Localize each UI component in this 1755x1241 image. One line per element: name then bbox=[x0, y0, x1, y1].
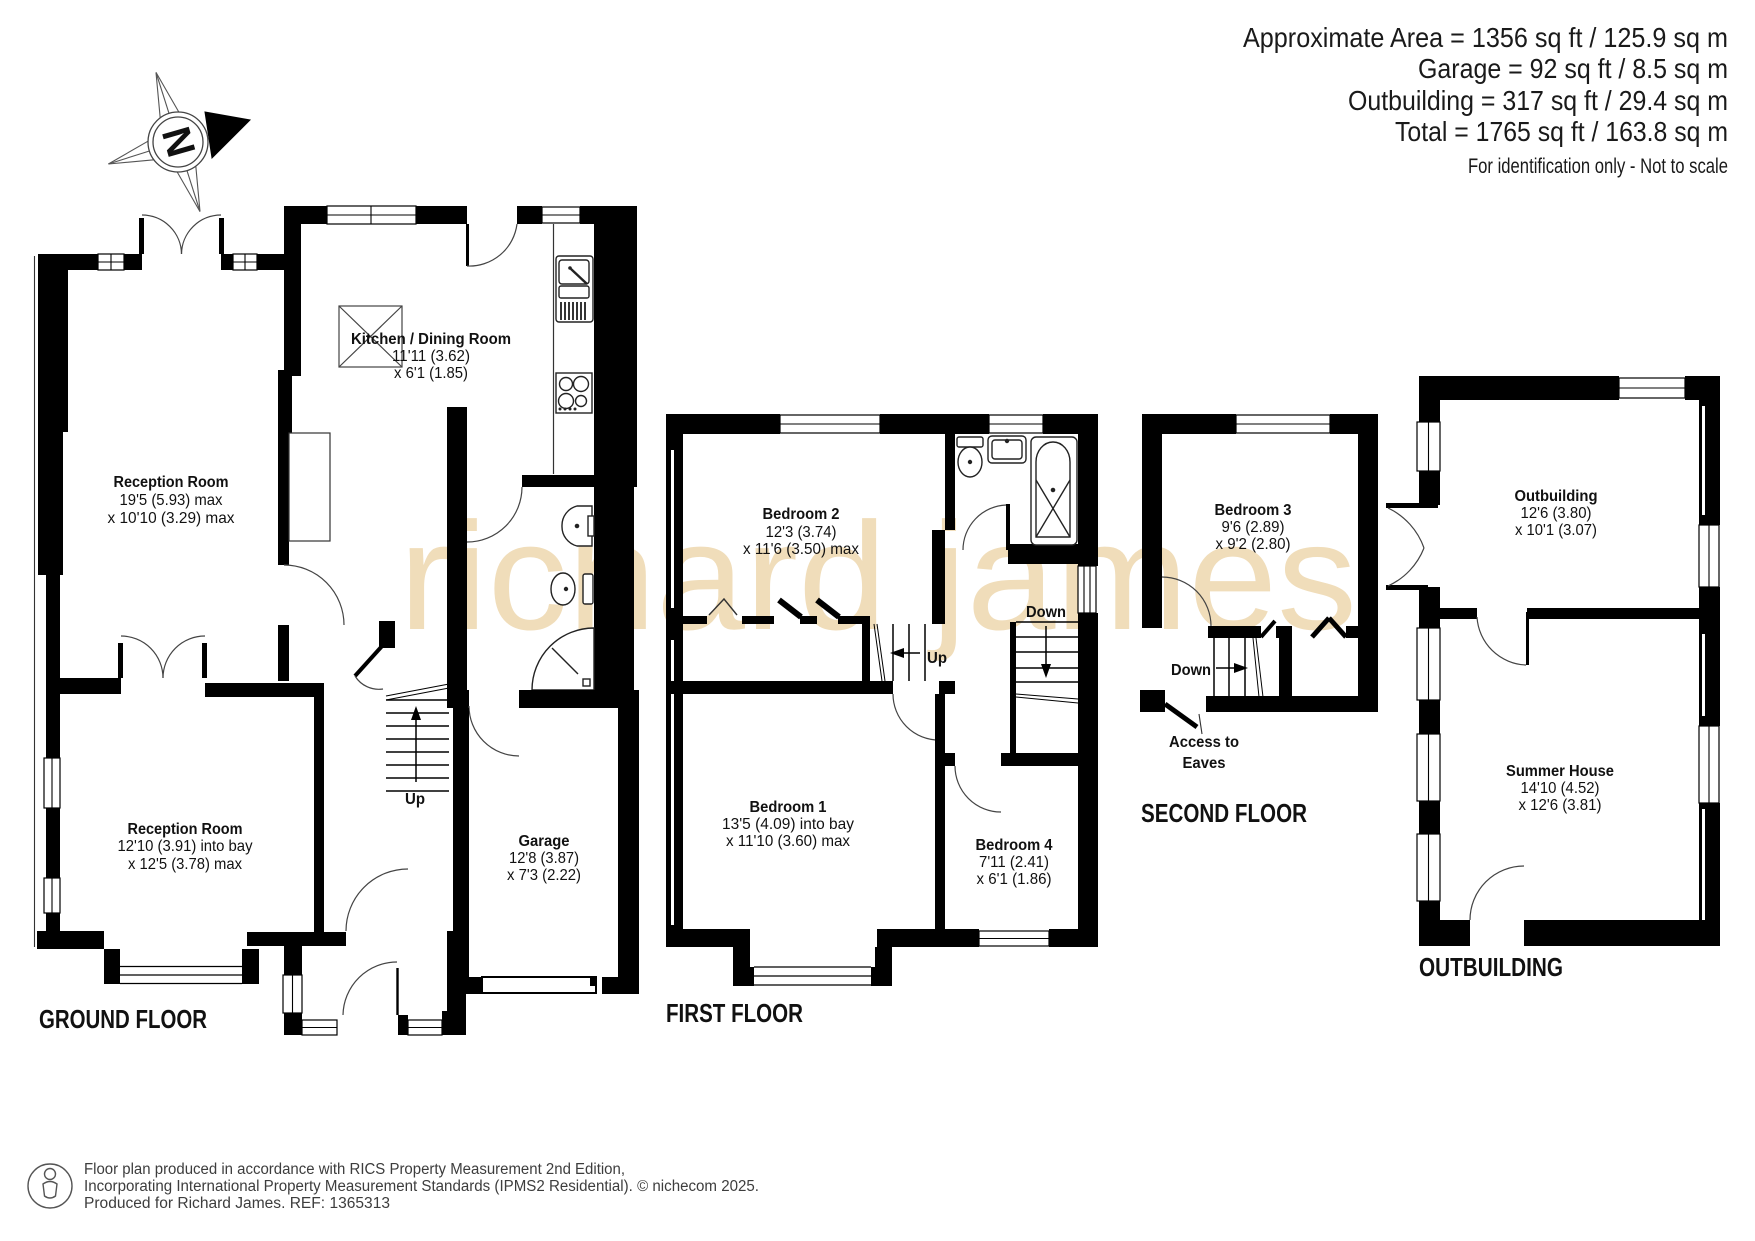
svg-text:Outbuilding: Outbuilding bbox=[1515, 488, 1598, 505]
svg-text:Garage = 92 sq ft / 8.5 sq m: Garage = 92 sq ft / 8.5 sq m bbox=[1418, 53, 1728, 84]
svg-text:Produced for Richard James.: Produced for Richard James. REF: 1365313 bbox=[84, 1195, 390, 1212]
svg-text:12'6 (3.80): 12'6 (3.80) bbox=[1521, 505, 1592, 522]
svg-text:Reception Room: Reception Room bbox=[114, 474, 229, 491]
svg-text:Total = 1765 sq ft / 163.8 sq: Total = 1765 sq ft / 163.8 sq m bbox=[1395, 116, 1728, 147]
svg-text:Bedroom 2: Bedroom 2 bbox=[763, 506, 840, 523]
svg-text:x 9'2 (2.80): x 9'2 (2.80) bbox=[1216, 536, 1291, 553]
svg-text:Summer House: Summer House bbox=[1506, 763, 1614, 780]
svg-text:x 11'10 (3.60) max: x 11'10 (3.60) max bbox=[726, 833, 850, 850]
svg-text:19'5 (5.93) max: 19'5 (5.93) max bbox=[120, 492, 223, 509]
svg-text:Down: Down bbox=[1171, 662, 1211, 679]
svg-text:Down: Down bbox=[1026, 604, 1066, 621]
svg-text:FIRST FLOOR: FIRST FLOOR bbox=[666, 998, 803, 1028]
svg-text:Floor plan produced in accorda: Floor plan produced in accordance with R… bbox=[84, 1161, 625, 1178]
svg-text:Outbuilding = 317 sq ft / 29.4: Outbuilding = 317 sq ft / 29.4 sq m bbox=[1348, 85, 1728, 116]
svg-text:11'11 (3.62): 11'11 (3.62) bbox=[392, 348, 470, 365]
svg-text:Eaves: Eaves bbox=[1183, 755, 1226, 772]
svg-text:Kitchen / Dining Room: Kitchen / Dining Room bbox=[351, 331, 511, 348]
svg-text:13'5 (4.09) into bay: 13'5 (4.09) into bay bbox=[722, 816, 854, 833]
svg-text:x 6'1 (1.86): x 6'1 (1.86) bbox=[977, 871, 1052, 888]
svg-text:Incorporating International Pr: Incorporating International Property Mea… bbox=[84, 1178, 759, 1195]
svg-text:OUTBUILDING: OUTBUILDING bbox=[1419, 952, 1563, 982]
svg-text:Garage: Garage bbox=[519, 833, 570, 850]
svg-text:12'3 (3.74): 12'3 (3.74) bbox=[766, 524, 837, 541]
svg-text:x 10'10 (3.29) max: x 10'10 (3.29) max bbox=[108, 510, 235, 527]
svg-text:Bedroom 1: Bedroom 1 bbox=[750, 799, 827, 816]
svg-text:x 6'1 (1.85): x 6'1 (1.85) bbox=[394, 365, 468, 382]
svg-text:Up: Up bbox=[405, 791, 425, 808]
svg-text:9'6 (2.89): 9'6 (2.89) bbox=[1222, 519, 1285, 536]
svg-text:GROUND FLOOR: GROUND FLOOR bbox=[39, 1004, 207, 1034]
svg-text:x 11'6 (3.50) max: x 11'6 (3.50) max bbox=[743, 541, 859, 558]
svg-text:x 10'1 (3.07): x 10'1 (3.07) bbox=[1515, 522, 1597, 539]
svg-text:Up: Up bbox=[927, 650, 947, 667]
svg-text:x 12'6 (3.81): x 12'6 (3.81) bbox=[1519, 797, 1602, 814]
svg-text:Approximate Area = 1356 sq ft: Approximate Area = 1356 sq ft / 125.9 sq… bbox=[1243, 22, 1728, 53]
svg-text:Reception Room: Reception Room bbox=[128, 821, 243, 838]
svg-text:12'10 (3.91) into bay: 12'10 (3.91) into bay bbox=[118, 838, 253, 855]
svg-text:Bedroom 3: Bedroom 3 bbox=[1215, 502, 1292, 519]
svg-text:7'11 (2.41): 7'11 (2.41) bbox=[979, 854, 1049, 871]
svg-text:Bedroom 4: Bedroom 4 bbox=[976, 837, 1053, 854]
svg-text:x 12'5 (3.78) max: x 12'5 (3.78) max bbox=[128, 856, 242, 873]
svg-text:12'8 (3.87): 12'8 (3.87) bbox=[509, 850, 579, 867]
svg-text:For identification only - Not: For identification only - Not to scale bbox=[1468, 155, 1728, 178]
svg-text:SECOND FLOOR: SECOND FLOOR bbox=[1141, 798, 1307, 828]
svg-text:x 7'3 (2.22): x 7'3 (2.22) bbox=[507, 867, 581, 884]
svg-text:Access to: Access to bbox=[1169, 734, 1239, 751]
svg-text:14'10 (4.52): 14'10 (4.52) bbox=[1521, 780, 1600, 797]
